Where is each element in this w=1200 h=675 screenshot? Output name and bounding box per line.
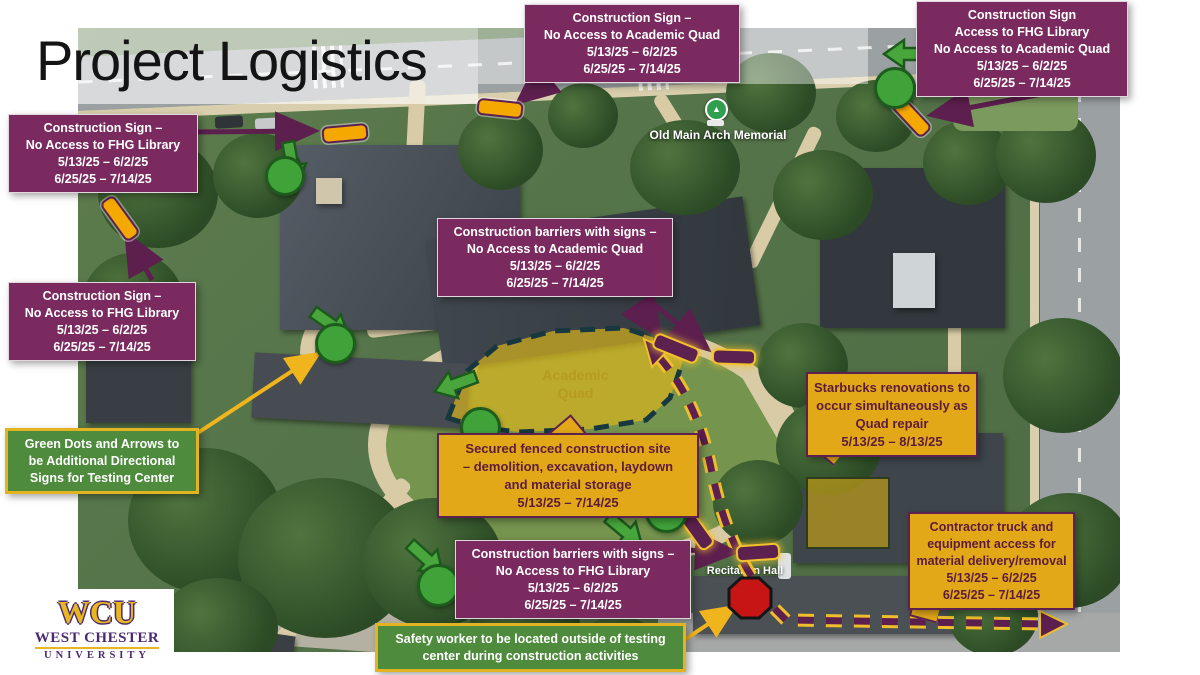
callout-text-line: Safety worker to be located outside of t… xyxy=(382,631,679,648)
callout-text-line: 6/25/25 – 7/14/25 xyxy=(13,339,191,356)
callout-barriers-no-fhg: Construction barriers with signs –No Acc… xyxy=(455,540,691,619)
callout-text-line: Signs for Testing Center xyxy=(12,470,192,487)
callout-text-line: Construction Sign xyxy=(921,7,1123,24)
tree-canopy xyxy=(713,460,803,545)
tree-pin-icon: ▲ xyxy=(705,98,728,121)
callout-text-line: 6/25/25 – 7/14/25 xyxy=(460,597,686,614)
callout-text-line: 5/13/25 – 6/2/25 xyxy=(921,58,1123,75)
tree-canopy xyxy=(458,110,543,190)
callout-text-line: Construction Sign – xyxy=(529,10,735,27)
green-dot-marker xyxy=(315,323,356,364)
building-tower xyxy=(316,178,342,204)
callout-text-line: No Access to Academic Quad xyxy=(529,27,735,44)
map-label-academic-quad: Academic Quad xyxy=(528,366,623,402)
callout-text-line: 5/13/25 – 8/13/25 xyxy=(812,433,972,451)
logo-acronym: WCU xyxy=(20,595,174,629)
callout-text-line: center during construction activities xyxy=(382,648,679,665)
callout-text-line: No Access to FHG Library xyxy=(460,563,686,580)
green-dot-marker xyxy=(417,564,460,607)
page-title: Project Logistics xyxy=(36,28,427,93)
callout-text-line: material delivery/removal xyxy=(914,553,1069,570)
callout-text-line: Secured fenced construction site xyxy=(443,440,693,458)
callout-text-line: Quad repair xyxy=(812,415,972,433)
construction-barrier-marker xyxy=(712,348,757,366)
callout-text-line: 5/13/25 – 6/2/25 xyxy=(13,154,193,171)
callout-text-line: 6/25/25 – 7/14/25 xyxy=(13,171,193,188)
callout-text-line: be Additional Directional xyxy=(12,453,192,470)
callout-construction-sign-no-fhg-top: Construction Sign –No Access to FHG Libr… xyxy=(8,114,198,193)
callout-construction-sign-access-fhg: Construction SignAccess to FHG LibraryNo… xyxy=(916,1,1128,97)
callout-text-line: Construction Sign – xyxy=(13,120,193,137)
callout-text-line: 5/13/25 – 6/2/25 xyxy=(460,580,686,597)
callout-text-line: and material storage xyxy=(443,476,693,494)
tree-canopy xyxy=(1003,318,1120,433)
tree-canopy xyxy=(548,83,618,148)
callout-text-line: Construction barriers with signs – xyxy=(442,224,668,241)
map-label-old-main: Old Main Arch Memorial xyxy=(643,128,793,142)
callout-text-line: occur simultaneously as xyxy=(812,397,972,415)
starbucks-highlight-overlay xyxy=(806,477,890,549)
callout-text-line: No Access to FHG Library xyxy=(13,137,193,154)
map-label-recitation: Recitation Hall xyxy=(690,565,800,577)
car xyxy=(215,115,244,128)
building-small-left xyxy=(86,353,191,423)
logo-line2: UNIVERSITY xyxy=(20,649,174,663)
callout-text-line: 5/13/25 – 6/2/25 xyxy=(13,322,191,339)
callout-text-line: 5/13/25 – 7/14/25 xyxy=(443,494,693,512)
callout-text-line: No Access to Academic Quad xyxy=(442,241,668,258)
callout-text-line: 6/25/25 – 7/14/25 xyxy=(529,61,735,78)
callout-text-line: 6/25/25 – 7/14/25 xyxy=(921,75,1123,92)
callout-text-line: – demolition, excavation, laydown xyxy=(443,458,693,476)
slide-project-logistics: ▲ Old Main Arch Memorial Recitation Hall… xyxy=(0,0,1200,675)
green-dot-marker xyxy=(265,156,305,196)
callout-text-line: Construction barriers with signs – xyxy=(460,546,686,563)
car xyxy=(255,117,282,129)
callout-text-line: 5/13/25 – 6/2/25 xyxy=(529,44,735,61)
callout-text-line: Construction Sign – xyxy=(13,288,191,305)
callout-text-line: Starbucks renovations to xyxy=(812,379,972,397)
callout-construction-sign-no-fhg-left: Construction Sign –No Access to FHG Libr… xyxy=(8,282,196,361)
callout-text-line: 5/13/25 – 6/2/25 xyxy=(442,258,668,275)
callout-text-line: Access to FHG Library xyxy=(921,24,1123,41)
callout-text-line: No Access to Academic Quad xyxy=(921,41,1123,58)
green-dot-marker xyxy=(874,67,916,109)
callout-barriers-no-academic-quad: Construction barriers with signs –No Acc… xyxy=(437,218,673,297)
callout-text-line: 6/25/25 – 7/14/25 xyxy=(442,275,668,292)
rooftop-unit xyxy=(893,253,935,308)
construction-barrier-marker xyxy=(735,542,780,562)
callout-text-line: 5/13/25 – 6/2/25 xyxy=(914,570,1069,587)
callout-contractor-access: Contractor truck andequipment access for… xyxy=(908,512,1075,610)
wcu-logo: WCU WEST CHESTER UNIVERSITY xyxy=(20,589,174,675)
callout-text-line: equipment access for xyxy=(914,536,1069,553)
callout-safety-worker: Safety worker to be located outside of t… xyxy=(375,623,686,672)
building-lower-left xyxy=(251,352,469,428)
callout-text-line: Contractor truck and xyxy=(914,519,1069,536)
callout-construction-sign-no-academic-quad: Construction Sign –No Access to Academic… xyxy=(524,4,740,83)
pin-base xyxy=(707,120,724,126)
callout-green-dots-note: Green Dots and Arrows tobe Additional Di… xyxy=(5,428,199,494)
tree-canopy xyxy=(773,150,873,240)
callout-starbucks-renovations: Starbucks renovations tooccur simultaneo… xyxy=(806,372,978,457)
logo-line1: WEST CHESTER xyxy=(35,630,160,649)
callout-text-line: No Access to FHG Library xyxy=(13,305,191,322)
callout-text-line: 6/25/25 – 7/14/25 xyxy=(914,587,1069,604)
callout-text-line: Green Dots and Arrows to xyxy=(12,436,192,453)
callout-secured-construction-site: Secured fenced construction site– demoli… xyxy=(437,433,699,518)
